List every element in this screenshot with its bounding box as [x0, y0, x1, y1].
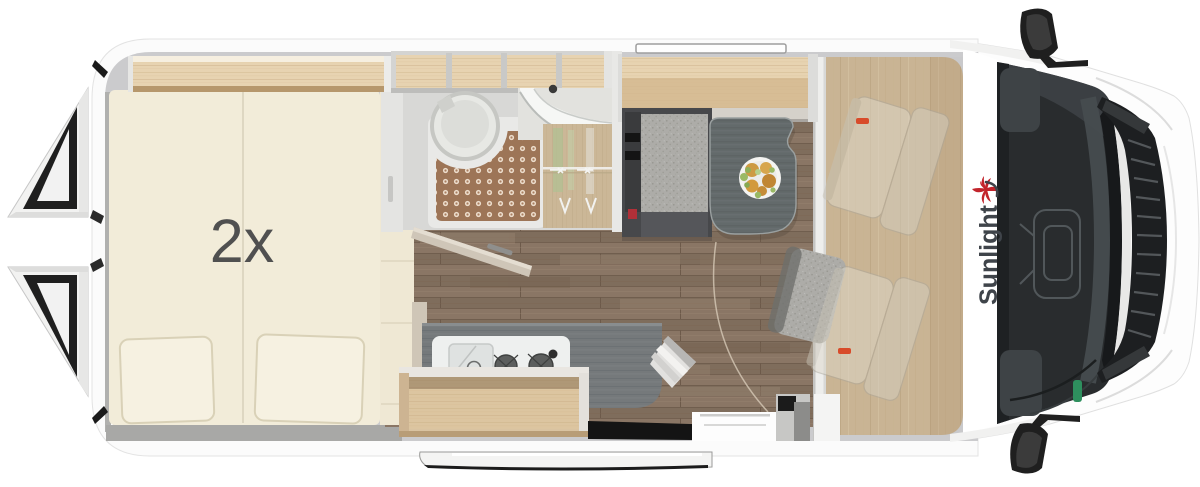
svg-text:Sunlight: Sunlight	[975, 204, 1003, 305]
svg-text:2x: 2x	[210, 207, 274, 275]
